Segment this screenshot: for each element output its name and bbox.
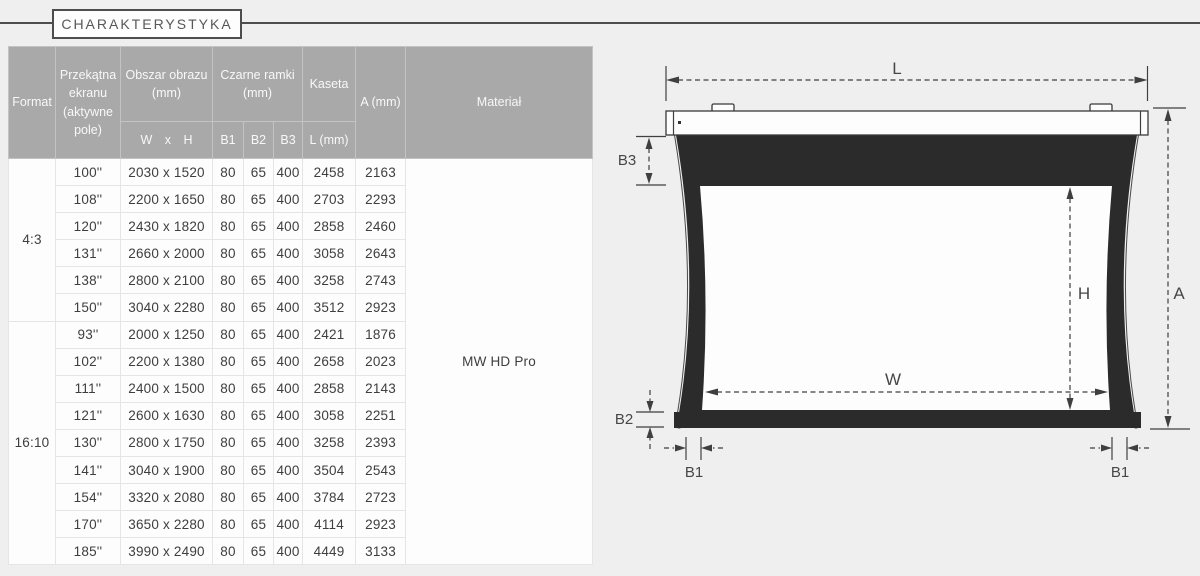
b3-cell: 400 [274,321,303,348]
b3-cell: 400 [274,375,303,402]
b2-cell: 65 [244,538,274,565]
cassette-length-cell: 2858 [303,213,356,240]
diagonal-cell: 141'' [56,457,121,484]
b3-cell: 400 [274,402,303,429]
a-dimension-cell: 2743 [356,267,406,294]
cassette-length-cell: 4114 [303,511,356,538]
dimension-B1-right: B1 [1090,437,1149,481]
col-header-a: A (mm) [356,47,406,159]
diagonal-cell: 111'' [56,375,121,402]
image-area-cell: 2600 x 1630 [121,402,213,429]
b1-cell: 80 [213,348,244,375]
b2-cell: 65 [244,375,274,402]
image-area-cell: 2200 x 1380 [121,348,213,375]
format-cell: 4:3 [9,159,56,322]
a-dimension-cell: 2543 [356,457,406,484]
cassette-length-cell: 2458 [303,159,356,186]
b2-cell: 65 [244,321,274,348]
b2-cell: 65 [244,484,274,511]
diagonal-cell: 121'' [56,402,121,429]
b1-cell: 80 [213,511,244,538]
b3-cell: 400 [274,240,303,267]
dimension-A-label: A [1173,284,1185,303]
diagonal-cell: 150'' [56,294,121,321]
col-header-b1: B1 [213,122,244,159]
cassette-length-cell: 3504 [303,457,356,484]
spec-table-body: 4:3100''2030 x 1520806540024582163MW HD … [9,159,593,565]
b3-cell: 400 [274,159,303,186]
cassette-length-cell: 4449 [303,538,356,565]
b1-cell: 80 [213,267,244,294]
image-area-cell: 2030 x 1520 [121,159,213,186]
col-header-l: L (mm) [303,122,356,159]
b2-cell: 65 [244,267,274,294]
b2-cell: 65 [244,429,274,456]
cassette-housing [666,104,1148,135]
b1-cell: 80 [213,484,244,511]
b1-cell: 80 [213,159,244,186]
screen-diagram: L A H W [600,40,1200,500]
b1-cell: 80 [213,402,244,429]
b1-cell: 80 [213,538,244,565]
b1-cell: 80 [213,213,244,240]
dimension-B2-label: B2 [615,411,633,428]
cassette-length-cell: 2658 [303,348,356,375]
b1-cell: 80 [213,294,244,321]
dimension-B1-right-label: B1 [1111,464,1129,481]
image-area-cell: 3040 x 2280 [121,294,213,321]
table-row: 4:3100''2030 x 1520806540024582163MW HD … [9,159,593,186]
image-area-cell: 2000 x 1250 [121,321,213,348]
dimension-B2: B2 [615,390,664,449]
cassette-length-cell: 3784 [303,484,356,511]
b1-cell: 80 [213,321,244,348]
a-dimension-cell: 2643 [356,240,406,267]
dimension-A: A [1150,108,1190,429]
b3-cell: 400 [274,348,303,375]
dimension-H-label: H [1078,284,1090,303]
image-area-cell: 2800 x 2100 [121,267,213,294]
b1-cell: 80 [213,429,244,456]
diagonal-cell: 102'' [56,348,121,375]
b3-cell: 400 [274,294,303,321]
a-dimension-cell: 2023 [356,348,406,375]
a-dimension-cell: 2293 [356,186,406,213]
col-header-b2: B2 [244,122,274,159]
bottom-bar [674,412,1141,429]
spec-table: Format Przekątna ekranu (aktywne pole) O… [8,46,593,565]
b3-cell: 400 [274,213,303,240]
a-dimension-cell: 2460 [356,213,406,240]
image-area-cell: 2200 x 1650 [121,186,213,213]
material-cell: MW HD Pro [406,159,593,565]
b2-cell: 65 [244,511,274,538]
cassette-length-cell: 3058 [303,240,356,267]
b2-cell: 65 [244,457,274,484]
a-dimension-cell: 1876 [356,321,406,348]
diagonal-cell: 154'' [56,484,121,511]
b3-cell: 400 [274,267,303,294]
b3-cell: 400 [274,511,303,538]
a-dimension-cell: 2143 [356,375,406,402]
col-header-black-frames: Czarne ramki (mm) [213,47,303,122]
table-header: Format Przekątna ekranu (aktywne pole) O… [9,47,593,159]
cassette-length-cell: 3258 [303,267,356,294]
dimension-B1-left: B1 [664,437,723,481]
cassette-length-cell: 2858 [303,375,356,402]
b2-cell: 65 [244,402,274,429]
b2-cell: 65 [244,159,274,186]
diagonal-cell: 108'' [56,186,121,213]
col-header-wxh: W x H [121,122,213,159]
cassette-length-cell: 3258 [303,429,356,456]
b1-cell: 80 [213,457,244,484]
a-dimension-cell: 2923 [356,294,406,321]
dimension-L: L [666,59,1148,101]
diagonal-cell: 93'' [56,321,121,348]
col-header-material: Materiał [406,47,593,159]
b3-cell: 400 [274,484,303,511]
a-dimension-cell: 2923 [356,511,406,538]
image-area-cell: 2660 x 2000 [121,240,213,267]
page-title: CHARAKTERYSTYKA [61,16,232,32]
b2-cell: 65 [244,213,274,240]
diagonal-cell: 120'' [56,213,121,240]
image-area-cell: 2800 x 1750 [121,429,213,456]
b1-cell: 80 [213,186,244,213]
section-title-box: CHARAKTERYSTYKA [52,9,242,39]
b2-cell: 65 [244,294,274,321]
a-dimension-cell: 2393 [356,429,406,456]
dimension-B3-label: B3 [618,152,636,169]
col-header-diagonal: Przekątna ekranu (aktywne pole) [56,47,121,159]
image-area-cell: 3650 x 2280 [121,511,213,538]
viewing-area [700,186,1112,410]
b1-cell: 80 [213,240,244,267]
format-cell: 16:10 [9,321,56,565]
image-area-cell: 3990 x 2490 [121,538,213,565]
diagonal-cell: 130'' [56,429,121,456]
diagonal-cell: 170'' [56,511,121,538]
dimension-W-label: W [885,370,901,389]
a-dimension-cell: 2723 [356,484,406,511]
cassette-length-cell: 3058 [303,402,356,429]
col-header-cassette: Kaseta [303,47,356,122]
a-dimension-cell: 2163 [356,159,406,186]
b1-cell: 80 [213,375,244,402]
image-area-cell: 3040 x 1900 [121,457,213,484]
col-header-image-area: Obszar obrazu (mm) [121,47,213,122]
page: CHARAKTERYSTYKA Format Przekątna ekranu … [0,0,1200,576]
cassette-length-cell: 2421 [303,321,356,348]
b2-cell: 65 [244,348,274,375]
b3-cell: 400 [274,457,303,484]
dimension-B3: B3 [618,137,666,186]
col-header-b3: B3 [274,122,303,159]
dimension-B1-left-label: B1 [685,464,703,481]
cassette-length-cell: 2703 [303,186,356,213]
diagonal-cell: 131'' [56,240,121,267]
image-area-cell: 3320 x 2080 [121,484,213,511]
b2-cell: 65 [244,240,274,267]
col-header-format: Format [9,47,56,159]
a-dimension-cell: 2251 [356,402,406,429]
image-area-cell: 2430 x 1820 [121,213,213,240]
a-dimension-cell: 3133 [356,538,406,565]
diagonal-cell: 100'' [56,159,121,186]
cassette-length-cell: 3512 [303,294,356,321]
b3-cell: 400 [274,538,303,565]
dimension-L-label: L [892,59,901,78]
diagonal-cell: 138'' [56,267,121,294]
b2-cell: 65 [244,186,274,213]
b3-cell: 400 [274,429,303,456]
b3-cell: 400 [274,186,303,213]
image-area-cell: 2400 x 1500 [121,375,213,402]
diagonal-cell: 185'' [56,538,121,565]
